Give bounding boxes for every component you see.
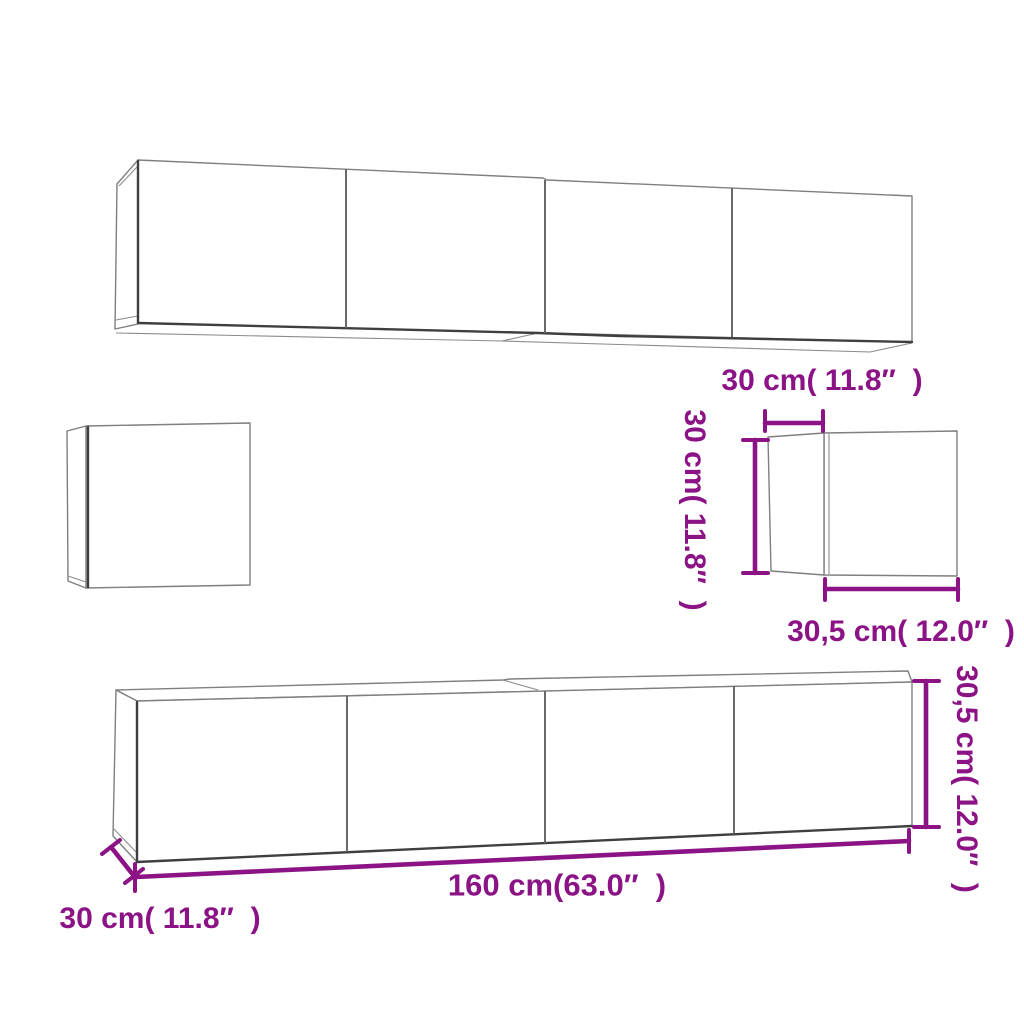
dimension-label-bench-depth: 30 cm( 11.8″ ) bbox=[59, 904, 260, 934]
top-cabinet-underside-left bbox=[116, 333, 502, 341]
dimension-label-cube-height-side: 30 cm( 11.8″ ) bbox=[679, 409, 709, 610]
top-cabinet-front-face bbox=[138, 160, 912, 342]
dimension-label-bench-height: 30,5 cm( 12.0″ ) bbox=[951, 665, 981, 893]
cube-front-face bbox=[824, 431, 957, 576]
tv-bench bbox=[113, 671, 912, 862]
top-cabinet-left-side bbox=[115, 160, 138, 329]
cube-left-side bbox=[768, 433, 824, 575]
top-cabinet-underside-seam bbox=[502, 333, 538, 341]
cube-wall-cabinet bbox=[768, 431, 957, 576]
bench-front-face bbox=[137, 682, 912, 862]
small-cabinet-left-side bbox=[67, 426, 86, 588]
dimension-label-cube-width-bottom: 30,5 cm( 12.0″ ) bbox=[787, 617, 1015, 647]
top-wall-cabinet bbox=[115, 160, 912, 352]
dimension-label-bench-length: 160 cm(63.0″ ) bbox=[448, 870, 666, 901]
small-cabinet-front-face bbox=[86, 423, 250, 588]
product-dimension-diagram: 30 cm( 11.8″ ) 30 cm( 11.8″ ) 30,5 cm( 1… bbox=[0, 0, 1024, 1024]
small-wall-cabinet bbox=[67, 423, 250, 588]
dimension-label-cube-depth-top: 30 cm( 11.8″ ) bbox=[721, 366, 922, 396]
top-cabinet-underside-right bbox=[502, 341, 912, 352]
bench-left-side bbox=[113, 690, 137, 862]
